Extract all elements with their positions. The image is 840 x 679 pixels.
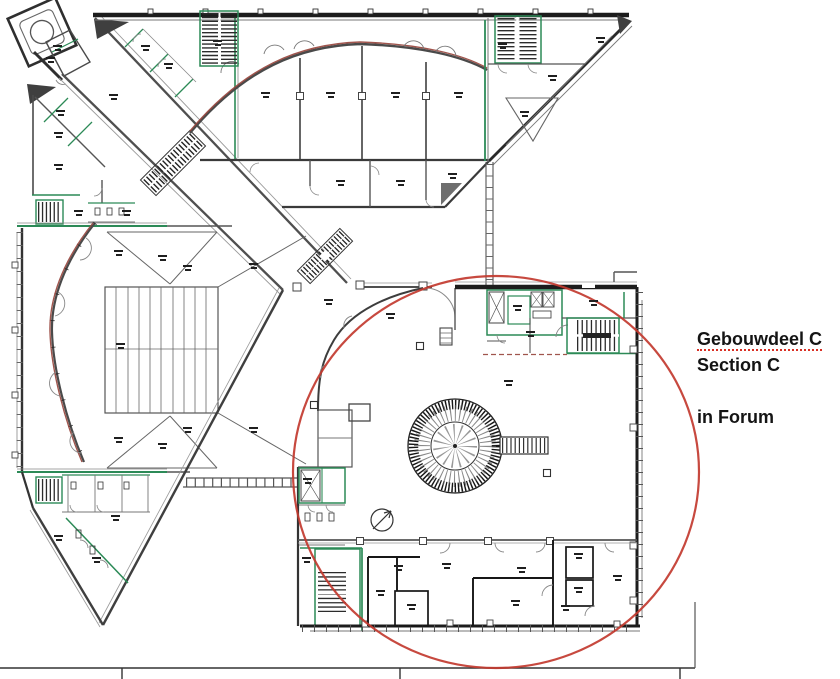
label-section-c: Section C — [697, 352, 822, 378]
floor-plan: Gebouwdeel C Section C in Forum — [0, 0, 840, 679]
annotation-block: Gebouwdeel C Section C in Forum — [697, 326, 822, 430]
label-gebouwdeel-c: Gebouwdeel C — [697, 326, 822, 352]
label-in-forum: in Forum — [697, 404, 822, 430]
